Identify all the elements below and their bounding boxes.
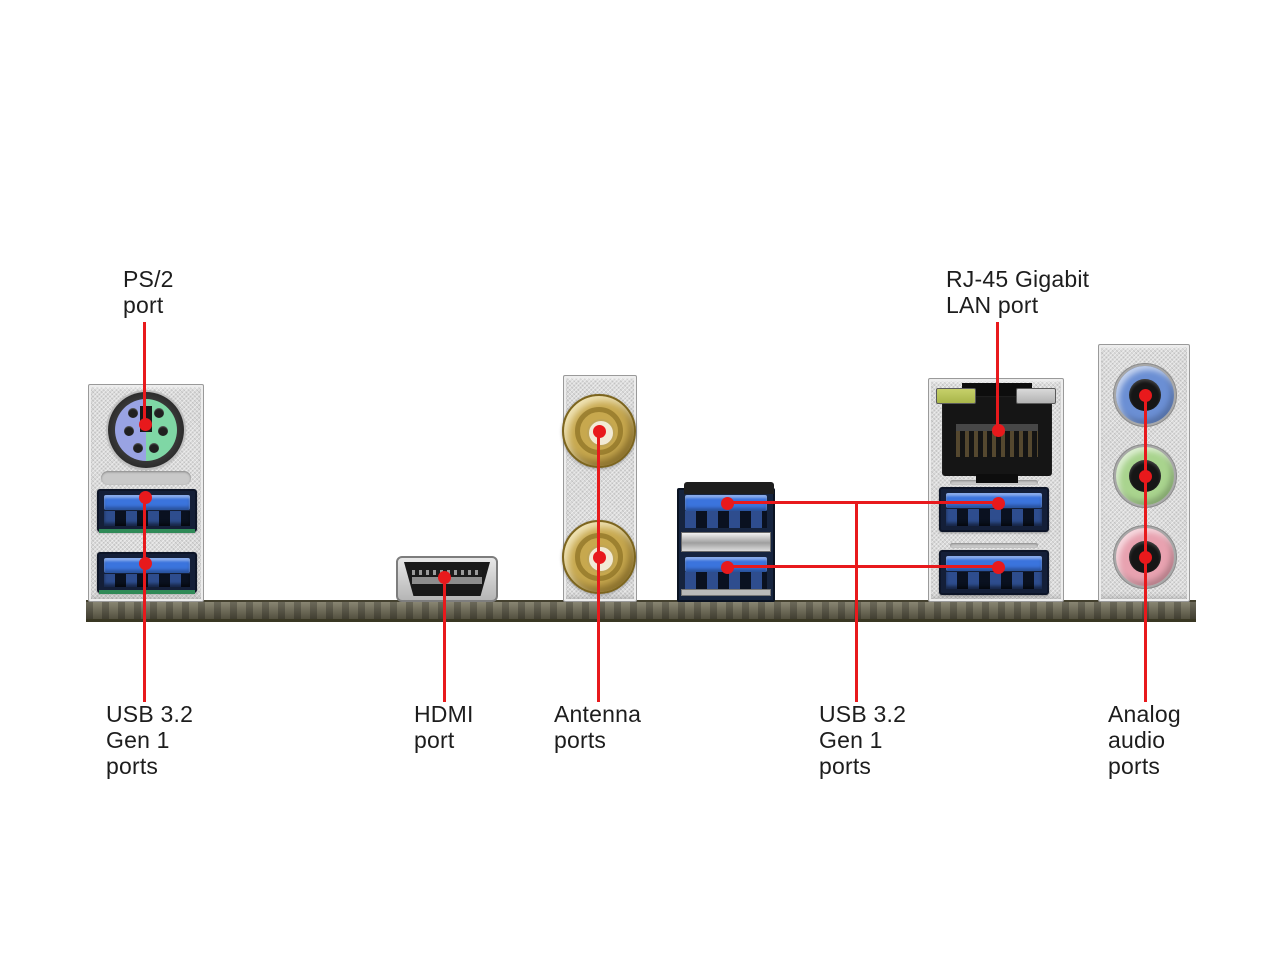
hdmi-label: HDMI port (414, 701, 474, 753)
callout-dot-ps2 (139, 418, 152, 431)
callout-dot-antenna-1 (593, 425, 606, 438)
callout-dot-usb-mid-1 (721, 497, 734, 510)
motherboard-rear-io-diagram: PS/2 port RJ-45 Gigabit LAN port USB 3.2… (0, 0, 1280, 960)
callout-dot-usb-left-1 (139, 491, 152, 504)
callout-dot-usb-mid-2 (721, 561, 734, 574)
callout-dot-antenna-2 (593, 551, 606, 564)
callout-dot-lan (992, 424, 1005, 437)
usb-stack-cap (684, 482, 774, 494)
callout-dot-usb-left-2 (139, 557, 152, 570)
callout-line-usb-row-1 (727, 501, 999, 504)
ps2-label: PS/2 port (123, 266, 174, 318)
usb-stack-foot (681, 589, 771, 596)
usb-stack-divider (681, 532, 771, 552)
callout-line-usb-mid (855, 501, 858, 702)
lan-clip-tab (976, 474, 1018, 483)
ps2-pin (133, 443, 143, 453)
ps2-pin (158, 426, 168, 436)
bracket-vent-slot (101, 471, 191, 485)
callout-dot-usb-right-2 (992, 561, 1005, 574)
ps2-pin (128, 408, 138, 418)
usb-mid-label: USB 3.2 Gen 1 ports (819, 701, 906, 779)
ps2-pin (124, 426, 134, 436)
lan-label: RJ-45 Gigabit LAN port (946, 266, 1089, 318)
callout-dot-audio-2 (1139, 470, 1152, 483)
callout-dot-usb-right-1 (992, 497, 1005, 510)
callout-line-usb-left (143, 496, 146, 702)
audio-label: Analog audio ports (1108, 701, 1181, 779)
usb-contacts (946, 572, 1042, 589)
usb-left-label: USB 3.2 Gen 1 ports (106, 701, 193, 779)
usb-contacts (104, 511, 190, 526)
ps2-pin (149, 443, 159, 453)
usb-contacts (104, 574, 190, 587)
usb-port-right-1 (939, 487, 1049, 532)
lan-led-right (1016, 388, 1056, 404)
usb-contacts (685, 511, 767, 528)
callout-line-antenna (597, 432, 600, 702)
pcb-edge (86, 600, 1196, 622)
pcb-green-edge (99, 590, 195, 594)
antenna-label: Antenna ports (554, 701, 641, 753)
usb-contacts (685, 572, 767, 589)
pcb-green-edge (99, 529, 195, 533)
callout-line-usb-row-2 (727, 565, 999, 568)
callout-line-hdmi (443, 576, 446, 702)
ps2-pin (154, 408, 164, 418)
callout-dot-audio-1 (1139, 389, 1152, 402)
callout-line-ps2 (143, 322, 146, 426)
usb-contacts (946, 509, 1042, 526)
callout-line-audio (1144, 395, 1147, 702)
bracket-vent-slot (950, 543, 1038, 548)
callout-line-lan (996, 322, 999, 432)
callout-dot-audio-3 (1139, 551, 1152, 564)
lan-led-left (936, 388, 976, 404)
callout-dot-hdmi (438, 571, 451, 584)
